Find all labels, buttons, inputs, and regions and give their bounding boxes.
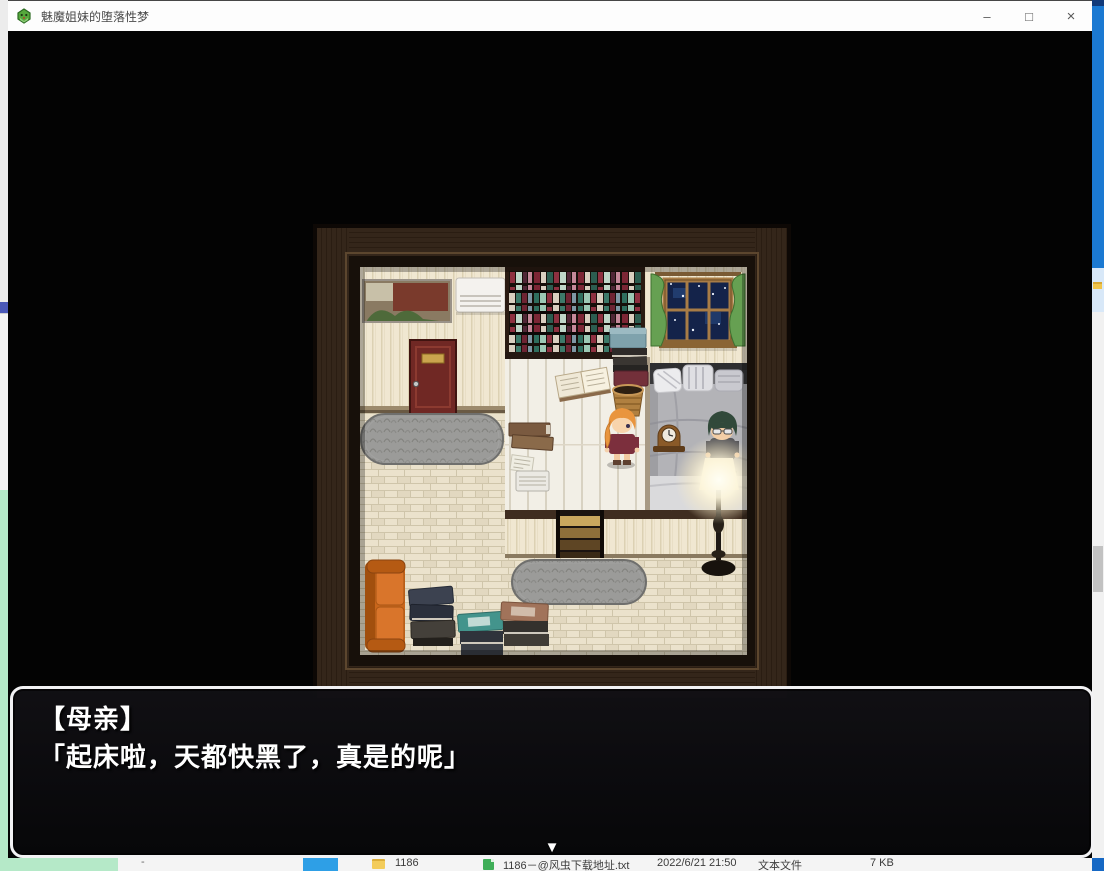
game-window: 魅魔姐妹的堕落性梦 – □ × <box>8 0 1092 858</box>
maximize-button[interactable]: □ <box>1008 1 1050 32</box>
minimize-button[interactable]: – <box>966 1 1008 32</box>
desktop-green <box>0 490 8 871</box>
shelf-side-books <box>610 328 648 386</box>
continue-indicator-icon: ▼ <box>545 841 560 855</box>
explorer-modified-date: 2022/6/21 21:50 <box>657 857 737 869</box>
right-window-bottom <box>1092 858 1104 871</box>
dialogue-speaker: 【母亲】 <box>39 700 1065 738</box>
left-window-body <box>0 0 8 302</box>
explorer-file-size: 7 KB <box>870 857 894 869</box>
desktop-green-strip <box>8 858 118 871</box>
left-window-lower <box>0 313 8 490</box>
explorer-folder-name[interactable]: 1186 <box>395 857 419 869</box>
titlebar[interactable]: 魅魔姐妹的堕落性梦 – □ × <box>8 0 1092 31</box>
taskbar-tile[interactable] <box>303 858 338 871</box>
scrollbar-thumb[interactable] <box>1093 546 1103 592</box>
books-inner <box>509 423 553 450</box>
screen: - 1186 1186－@风虫下载地址.txt 2022/6/21 21:50 … <box>0 0 1104 871</box>
vent-box <box>516 471 549 491</box>
steps <box>556 510 604 558</box>
right-window-iconband <box>1092 268 1104 312</box>
left-window-blue-bar <box>0 302 8 313</box>
sofa <box>365 560 405 652</box>
night-window <box>651 272 745 351</box>
window-title: 魅魔姐妹的堕落性梦 <box>41 8 149 25</box>
background-explorer-row[interactable]: - 1186 1186－@风虫下载地址.txt 2022/6/21 21:50 … <box>8 858 1092 871</box>
door <box>410 340 456 414</box>
folder-icon <box>1093 282 1102 289</box>
air-conditioner <box>456 278 505 315</box>
book-stack-teal <box>457 611 503 655</box>
room-map <box>313 224 791 702</box>
paper-sheet <box>510 455 534 473</box>
background-window-left[interactable] <box>0 0 8 871</box>
folder-icon <box>372 859 385 869</box>
right-window-blue <box>1092 6 1104 268</box>
book-stack-dark <box>408 586 455 646</box>
dialogue-window[interactable]: 【母亲】 「起床啦，天都快黑了，真是的呢」 ▼ <box>10 686 1094 858</box>
game-screen[interactable]: 【母亲】 「起床啦，天都快黑了，真是的呢」 ▼ <box>8 31 1092 858</box>
shag-rug-bottom <box>512 560 646 604</box>
dialogue-text: 「起床啦，天都快黑了，真是的呢」 <box>39 738 1065 776</box>
app-icon <box>15 7 33 25</box>
explorer-file-type: 文本文件 <box>758 857 802 871</box>
shag-rug-top <box>361 414 503 464</box>
book-stack-brown <box>501 602 549 646</box>
explorer-file-name[interactable]: 1186－@风虫下载地址.txt <box>503 857 630 871</box>
text-file-icon <box>483 859 494 870</box>
painting <box>363 280 451 322</box>
close-button[interactable]: × <box>1050 1 1092 32</box>
